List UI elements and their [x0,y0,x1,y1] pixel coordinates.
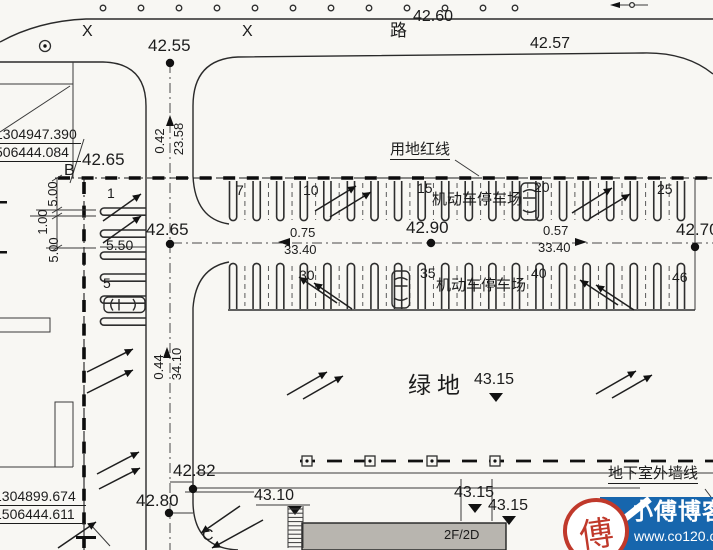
watermark-site-name: 小傅博客 [630,499,713,523]
site-plan-canvas: 42.60 路 42.57 X X 42.55 1304947.390 5064… [0,0,713,550]
spot-dot-4255-icon [166,59,174,67]
building-floors-label: 2F/2D [444,528,479,542]
red-line-annotation: 用地红线 [390,142,450,160]
green-space-annotation: 绿地 [408,373,466,397]
stall-number: 7 [236,183,244,198]
dim-aisle-offset-west: 0.75 [290,226,315,240]
dim-stall-depth: 5.50 [106,238,133,253]
stall-number: 15 [417,181,433,196]
parking-lot-annotation-bottom: 机动车停车场 [436,278,526,294]
dim-road-span-north: 23.58 [172,123,186,156]
elevation-green-space: 43.15 [474,372,514,389]
stall-number: 20 [534,180,550,195]
elevation-road-north: 42.60 [413,9,453,26]
stall-number: 1 [107,186,115,201]
spot-dot-4265-icon [166,240,174,248]
dim-road-span-west: 34.10 [170,348,184,381]
stall-number: 30 [299,268,315,283]
elevation-road-south-edge: 42.57 [530,36,570,53]
stall-number: 5 [103,276,111,291]
elevation-aisle-east: 42.70 [676,221,713,239]
dim-setback-bottom: 5.00 [47,237,61,262]
road-name-label: 路 [390,22,407,40]
dim-setback-mid: 1.00 [36,209,50,234]
survey-mark-x: X [82,24,93,41]
elevation-road-west-upper: 42.82 [173,462,216,480]
stall-number: 46 [672,270,688,285]
dim-arrow-right-icon [575,238,587,246]
basement-wall-annotation: 地下室外墙线 [608,466,698,484]
parking-lot-annotation-top: 机动车停车场 [432,192,522,208]
spot-dot-4270-icon [691,243,699,251]
elevation-road-west-lower: 42.80 [136,492,179,510]
elevation-aisle-west: 42.65 [146,221,189,239]
point-c-label: C [202,528,214,545]
markers-and-symbols [0,2,699,539]
elevation-boundary-b: 42.65 [82,151,125,169]
dim-aisle-span-west: 33.40 [284,243,317,257]
elevation-intersection-north: 42.55 [148,37,191,55]
stall-number: 10 [303,183,319,198]
point-b-label: B [64,163,75,180]
point-b-coord-y: 506444.084 [0,145,81,162]
spot-triangle-green-icon [489,393,503,402]
fence-post-circles [100,5,518,11]
elevation-aisle-center: 42.90 [406,219,449,237]
elevation-building-edge-2: 43.15 [488,498,528,515]
dim-road-offset-west: 0.44 [152,354,166,379]
stall-number: 35 [420,266,436,281]
dim-road-offset-north: 0.42 [153,128,167,153]
dim-aisle-offset-east: 0.57 [543,224,568,238]
spot-dot-4282-icon [189,485,197,493]
spot-dot-4280-icon [165,509,173,517]
car-icon [104,297,145,313]
elevation-forecourt: 43.10 [254,488,294,505]
stall-number: 40 [531,266,547,281]
dim-aisle-span-east: 33.40 [538,241,571,255]
point-b-coord-x: 1304947.390 [0,127,81,144]
stall-number: 25 [657,182,673,197]
watermark-site-url: www.co120.com [634,529,713,544]
survey-mark-x: X [242,24,253,41]
spot-dot-4290-icon [427,239,435,247]
point-c-coord-x: 1304899.674 [0,489,86,506]
dim-setback-top: 5.00 [46,181,60,206]
spot-triangle-4315a-icon [468,504,482,513]
point-c-coord-y: 1506444.611 [0,507,86,524]
